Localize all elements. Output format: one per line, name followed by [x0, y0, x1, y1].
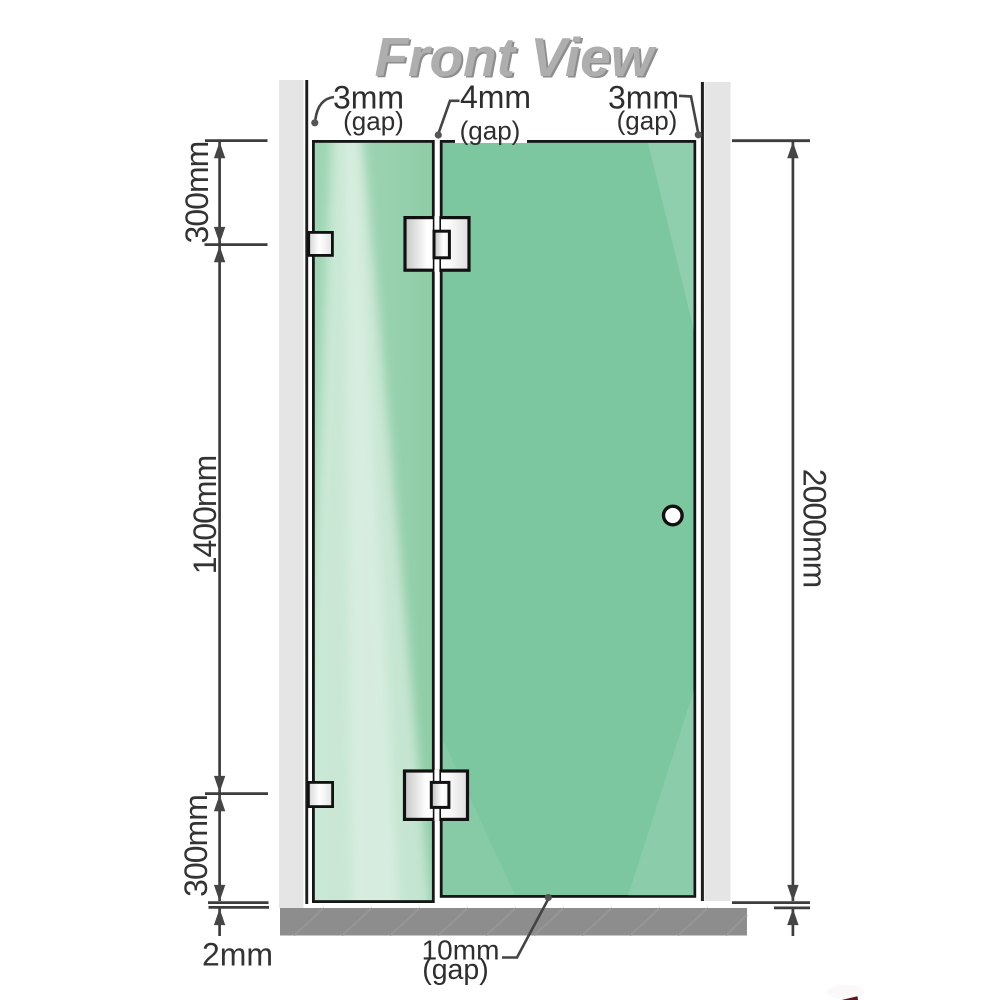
svg-text:(gap): (gap)	[343, 106, 404, 136]
svg-text:1400mm: 1400mm	[187, 456, 223, 575]
svg-text:(gap): (gap)	[617, 106, 678, 136]
svg-text:(gap): (gap)	[460, 115, 521, 145]
svg-text:2mm: 2mm	[202, 937, 273, 973]
svg-text:4mm: 4mm	[460, 79, 531, 115]
svg-text:300mm: 300mm	[178, 795, 214, 897]
svg-text:300mm: 300mm	[179, 142, 215, 244]
svg-text:(gap): (gap)	[422, 954, 489, 986]
svg-text:2000mm: 2000mm	[797, 469, 833, 588]
